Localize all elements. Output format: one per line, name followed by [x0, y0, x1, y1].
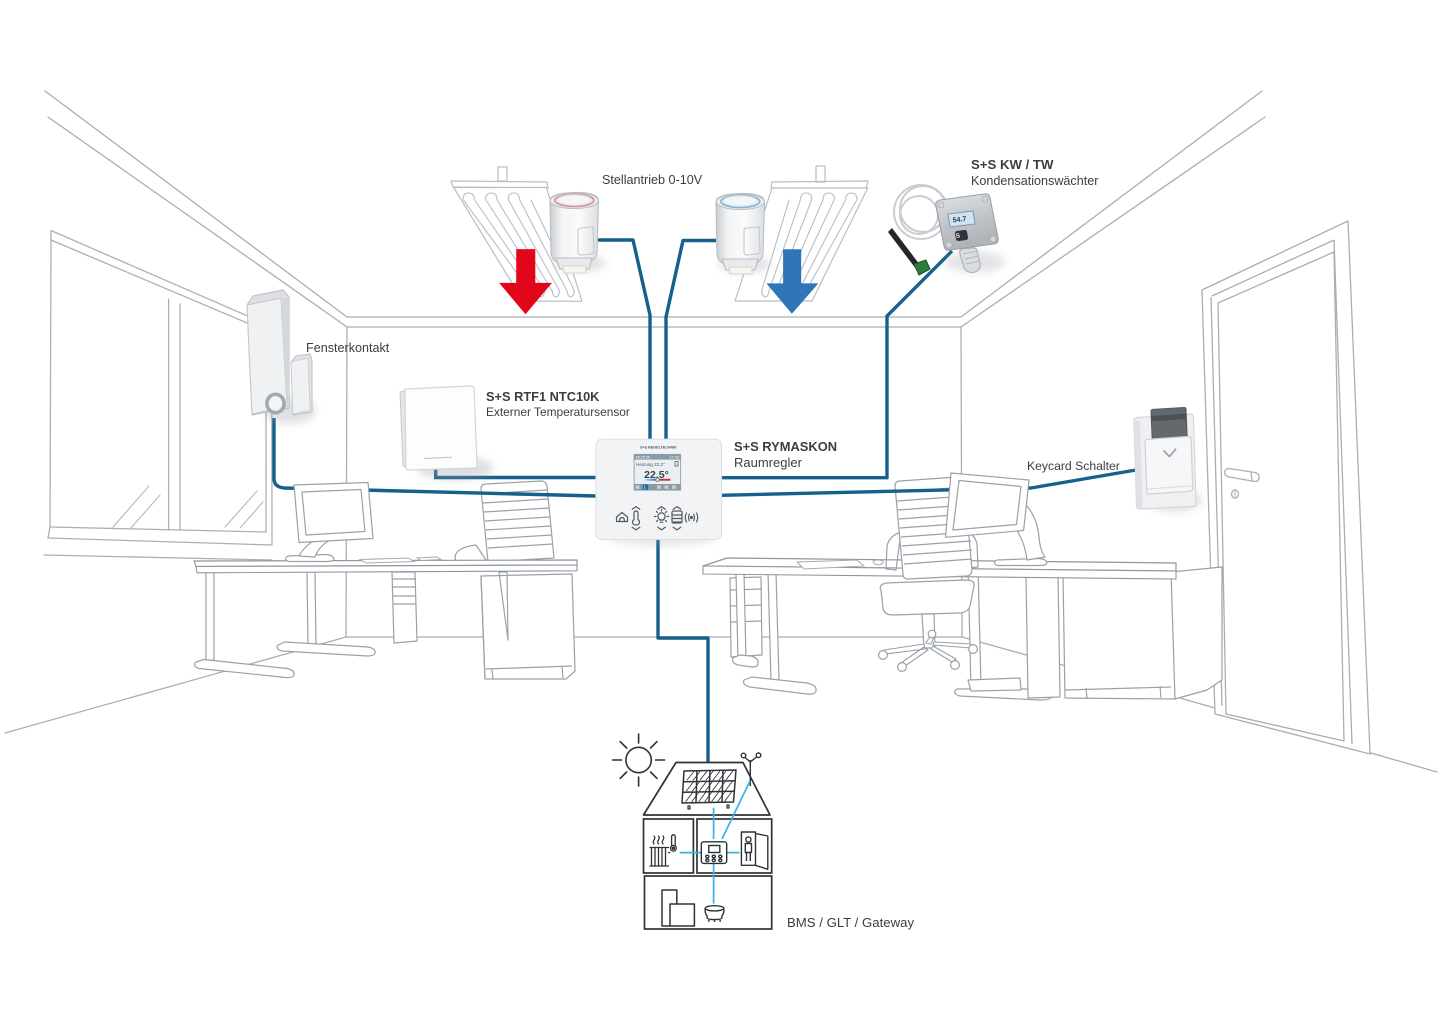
svg-text:Kondensationswächter: Kondensationswächter: [971, 174, 1098, 188]
svg-text:S+S RYMASKON: S+S RYMASKON: [734, 439, 837, 454]
svg-text:Fensterkontakt: Fensterkontakt: [306, 341, 390, 355]
svg-text:17:33: 17:33: [669, 456, 679, 460]
svg-text:Stellantrieb 0-10V: Stellantrieb 0-10V: [602, 173, 703, 187]
svg-text:Mi 25.06: Mi 25.06: [636, 456, 651, 460]
svg-text:i: i: [644, 485, 645, 490]
svg-text:Heizung 22.2°: Heizung 22.2°: [636, 462, 665, 467]
svg-text:S+S KW / TW: S+S KW / TW: [971, 157, 1054, 172]
svg-text:Keycard Schalter: Keycard Schalter: [1027, 459, 1120, 473]
svg-text:S+S RTF1 NTC10K: S+S RTF1 NTC10K: [486, 389, 600, 404]
svg-text:BMS / GLT / Gateway: BMS / GLT / Gateway: [787, 915, 914, 930]
svg-text:S+S REGELTECHNIK: S+S REGELTECHNIK: [640, 446, 677, 450]
svg-text:Raumregler: Raumregler: [734, 455, 803, 470]
svg-text:Externer Temperatursensor: Externer Temperatursensor: [486, 405, 630, 419]
